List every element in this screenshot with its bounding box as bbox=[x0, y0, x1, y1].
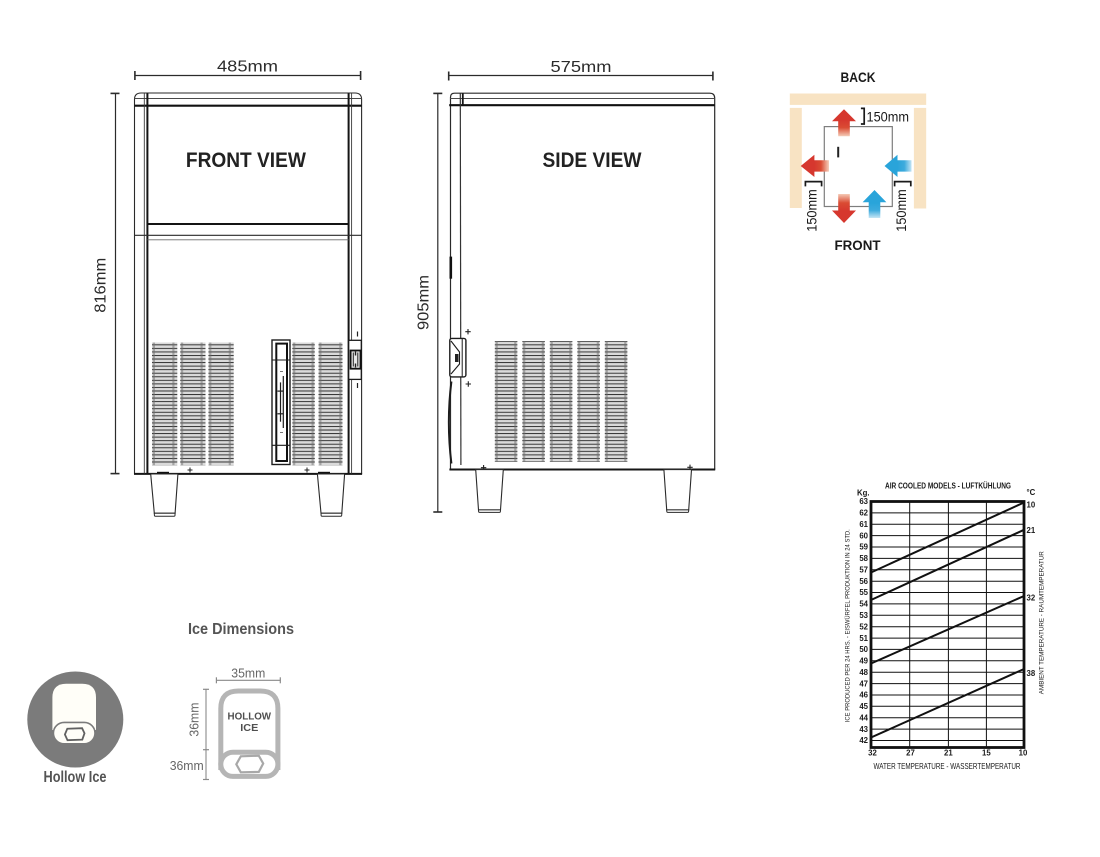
svg-text:575mm: 575mm bbox=[551, 59, 612, 76]
svg-text:61: 61 bbox=[859, 520, 868, 529]
svg-text:32: 32 bbox=[868, 749, 877, 758]
svg-text:58: 58 bbox=[859, 554, 868, 563]
svg-text:60: 60 bbox=[859, 531, 868, 540]
svg-text:Kg.: Kg. bbox=[857, 489, 870, 498]
svg-text:53: 53 bbox=[859, 611, 868, 620]
svg-text:ICE: ICE bbox=[240, 723, 258, 734]
svg-text:52: 52 bbox=[859, 622, 868, 631]
svg-text:ICE PRODUCED PER 24 HRS. - EIS: ICE PRODUCED PER 24 HRS. - EISWÜRFEL PRO… bbox=[844, 529, 852, 722]
svg-text:46: 46 bbox=[859, 691, 868, 700]
svg-text:49: 49 bbox=[859, 657, 868, 666]
svg-text:SIDE VIEW: SIDE VIEW bbox=[543, 148, 643, 172]
svg-text:150mm: 150mm bbox=[894, 189, 909, 232]
svg-text:BACK: BACK bbox=[841, 70, 876, 85]
svg-text:150mm: 150mm bbox=[867, 109, 910, 124]
svg-text:47: 47 bbox=[859, 679, 868, 688]
svg-text:38: 38 bbox=[1027, 669, 1036, 678]
svg-text:816mm: 816mm bbox=[93, 258, 110, 313]
svg-text:32: 32 bbox=[1027, 594, 1036, 603]
svg-text:905mm: 905mm bbox=[416, 275, 433, 330]
svg-text:15: 15 bbox=[982, 749, 991, 758]
svg-text:27: 27 bbox=[906, 749, 915, 758]
svg-text:485mm: 485mm bbox=[217, 59, 278, 76]
svg-text:AMBIENT TEMPERATURE - RAUMTEMP: AMBIENT TEMPERATURE - RAUMTEMPERATUR bbox=[1039, 551, 1046, 694]
svg-text:10: 10 bbox=[1027, 500, 1036, 509]
svg-text:150mm: 150mm bbox=[805, 189, 820, 232]
svg-text:21: 21 bbox=[944, 749, 953, 758]
svg-text:35mm: 35mm bbox=[231, 667, 265, 681]
svg-text:63: 63 bbox=[859, 497, 868, 506]
svg-text:59: 59 bbox=[859, 543, 868, 552]
svg-text:FRONT VIEW: FRONT VIEW bbox=[186, 148, 307, 172]
svg-text:21: 21 bbox=[1027, 526, 1036, 535]
svg-text:50: 50 bbox=[859, 645, 868, 654]
svg-text:AIR COOLED MODELS - LUFTKÜHLUN: AIR COOLED MODELS - LUFTKÜHLUNG bbox=[885, 481, 1011, 491]
svg-text:51: 51 bbox=[859, 634, 868, 643]
svg-text:62: 62 bbox=[859, 509, 868, 518]
svg-text:WATER TEMPERATURE - WASSERTEMP: WATER TEMPERATURE - WASSERTEMPERATUR bbox=[874, 762, 1021, 771]
svg-text:57: 57 bbox=[859, 566, 868, 575]
svg-text:45: 45 bbox=[859, 702, 868, 711]
svg-text:54: 54 bbox=[859, 600, 868, 609]
svg-text:56: 56 bbox=[859, 577, 868, 586]
svg-text:36mm: 36mm bbox=[188, 703, 202, 737]
svg-text:44: 44 bbox=[859, 713, 868, 722]
svg-text:36mm: 36mm bbox=[170, 759, 204, 773]
svg-text:°C: °C bbox=[1027, 488, 1036, 497]
svg-text:48: 48 bbox=[859, 668, 868, 677]
svg-text:FRONT: FRONT bbox=[835, 238, 882, 253]
svg-text:HOLLOW: HOLLOW bbox=[228, 712, 272, 723]
svg-text:55: 55 bbox=[859, 588, 868, 597]
svg-text:42: 42 bbox=[859, 736, 868, 745]
svg-text:Ice Dimensions: Ice Dimensions bbox=[188, 621, 294, 638]
svg-text:10: 10 bbox=[1019, 749, 1028, 758]
svg-text:43: 43 bbox=[859, 725, 868, 734]
svg-text:Hollow Ice: Hollow Ice bbox=[44, 769, 107, 786]
